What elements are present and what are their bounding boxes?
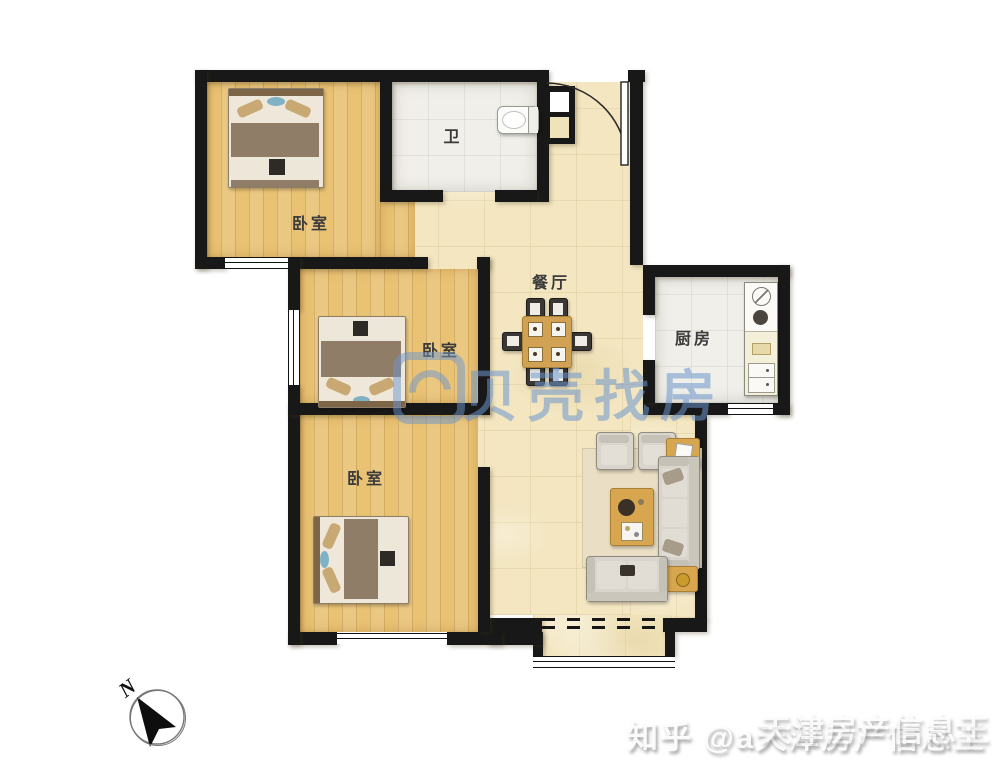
bed-top xyxy=(228,88,324,188)
label-bedroom-top: 卧室 xyxy=(292,210,330,234)
tray-dot xyxy=(625,526,630,531)
sofa-arm xyxy=(659,457,689,466)
tray-dot xyxy=(634,532,639,537)
bed-pillow xyxy=(284,98,312,119)
wall-balcony-right xyxy=(665,632,675,656)
label-bedroom-bottom: 卧室 xyxy=(347,465,385,489)
wall-br3-right xyxy=(478,467,490,632)
bed-blanket xyxy=(231,123,319,157)
floorplan-canvas: 卧室 卫 餐厅 厨房 卧室 卧室 贝壳找房 知乎 @a天津房产信息王 天津房产信… xyxy=(0,0,1000,767)
decor-dot xyxy=(638,499,644,505)
bed-headboard xyxy=(229,89,323,96)
toilet xyxy=(497,106,539,134)
dining-chair xyxy=(502,332,524,351)
bed-pillow xyxy=(325,376,352,396)
kitchen-counter xyxy=(744,282,778,396)
wall-west-lower xyxy=(288,385,300,645)
window-balcony xyxy=(533,656,675,668)
window-bedroom-bottom xyxy=(337,633,447,644)
chair-cushion xyxy=(575,336,587,346)
beike-text-watermark: 贝壳找房 xyxy=(462,352,726,433)
drawer-knob xyxy=(766,369,769,372)
bedroom-top-doorway-floor xyxy=(380,200,415,257)
side-table-bottom xyxy=(666,566,698,592)
plate-dot xyxy=(533,327,537,331)
sink-icon xyxy=(752,287,771,306)
wall-west-upper xyxy=(288,257,300,310)
drawer xyxy=(749,364,774,378)
counter-cabinet xyxy=(748,363,775,393)
chair-cushion xyxy=(530,303,540,315)
bed-pillow xyxy=(236,98,264,119)
wall-br1-bottom-post xyxy=(195,257,225,269)
toilet-tank xyxy=(528,107,538,133)
wall-living-bottom-step xyxy=(663,618,707,632)
plate-dot xyxy=(556,327,560,331)
wall-br2-top-left xyxy=(288,257,428,269)
bed-blanket xyxy=(344,519,378,599)
window-bedroom-middle xyxy=(288,310,300,385)
duct-shaft-lower xyxy=(550,117,569,138)
sofa-back xyxy=(689,457,699,569)
chair-cushion xyxy=(553,303,563,315)
compass-circle xyxy=(130,690,186,746)
balcony-opening-dash-lower xyxy=(542,626,665,629)
armchair xyxy=(596,432,634,470)
wall-left-outer xyxy=(195,70,207,269)
sofa-cushion xyxy=(662,499,687,527)
tray-white xyxy=(621,522,643,541)
wall-entry-post xyxy=(628,70,645,82)
bed-blanket xyxy=(321,341,401,377)
window-kitchen xyxy=(728,403,773,415)
bed-cushion-blue xyxy=(267,97,285,106)
cutting-board xyxy=(752,343,771,355)
sofa-arm xyxy=(587,557,595,593)
armchair-seat xyxy=(601,445,627,465)
balcony-opening-dash-upper xyxy=(542,618,665,621)
duct-shaft-white xyxy=(550,92,569,112)
wall-br3-bottom-right xyxy=(447,632,502,645)
wall-kitchen-right xyxy=(778,265,790,415)
beike-logo-watermark xyxy=(393,352,465,424)
wall-top-main xyxy=(195,70,545,82)
sofa-arm xyxy=(659,557,667,593)
zhihu-watermark-overlap: 天津房产信息王 xyxy=(760,705,991,750)
decor-dark xyxy=(618,499,635,516)
armchair-back xyxy=(599,435,629,443)
bed-pillow xyxy=(321,522,342,550)
coffee-table xyxy=(610,488,654,546)
bed-tray xyxy=(353,321,368,336)
bed-tray xyxy=(380,551,395,566)
placemat xyxy=(551,322,566,337)
bed-pillow xyxy=(321,566,342,594)
sofa-back xyxy=(587,592,667,601)
bed-tray xyxy=(269,159,285,175)
stove-burner-icon xyxy=(753,310,768,325)
toilet-bowl xyxy=(502,111,526,129)
drawer-knob xyxy=(766,383,769,386)
chair-cushion xyxy=(507,336,519,346)
sofa-long xyxy=(658,456,700,570)
balcony-floor xyxy=(533,615,675,660)
dining-chair xyxy=(570,332,592,351)
label-kitchen: 厨房 xyxy=(675,325,713,349)
wall-bathroom-bottom-right xyxy=(495,190,537,202)
bed-foot-bar xyxy=(231,180,319,187)
bed-pillow xyxy=(368,376,395,396)
wall-kitchen-left-upper xyxy=(643,277,655,315)
window-bedroom-top xyxy=(225,257,288,269)
label-dining: 餐厅 xyxy=(532,269,570,293)
placemat xyxy=(528,322,543,337)
sofa-loveseat xyxy=(586,556,668,602)
wall-kitchen-bottom-right xyxy=(773,403,790,415)
wall-kitchen-top xyxy=(643,265,790,277)
label-bathroom: 卫 xyxy=(443,123,462,147)
bowl-gold xyxy=(676,573,690,587)
handbag xyxy=(620,565,635,576)
bed-cushion-blue xyxy=(320,551,329,568)
wall-bathroom-bottom-left xyxy=(380,190,443,202)
bed-bottom xyxy=(313,516,409,604)
wall-hall-right xyxy=(630,82,643,265)
bathroom-floor xyxy=(392,82,537,192)
wall-bathroom-left xyxy=(380,82,392,194)
